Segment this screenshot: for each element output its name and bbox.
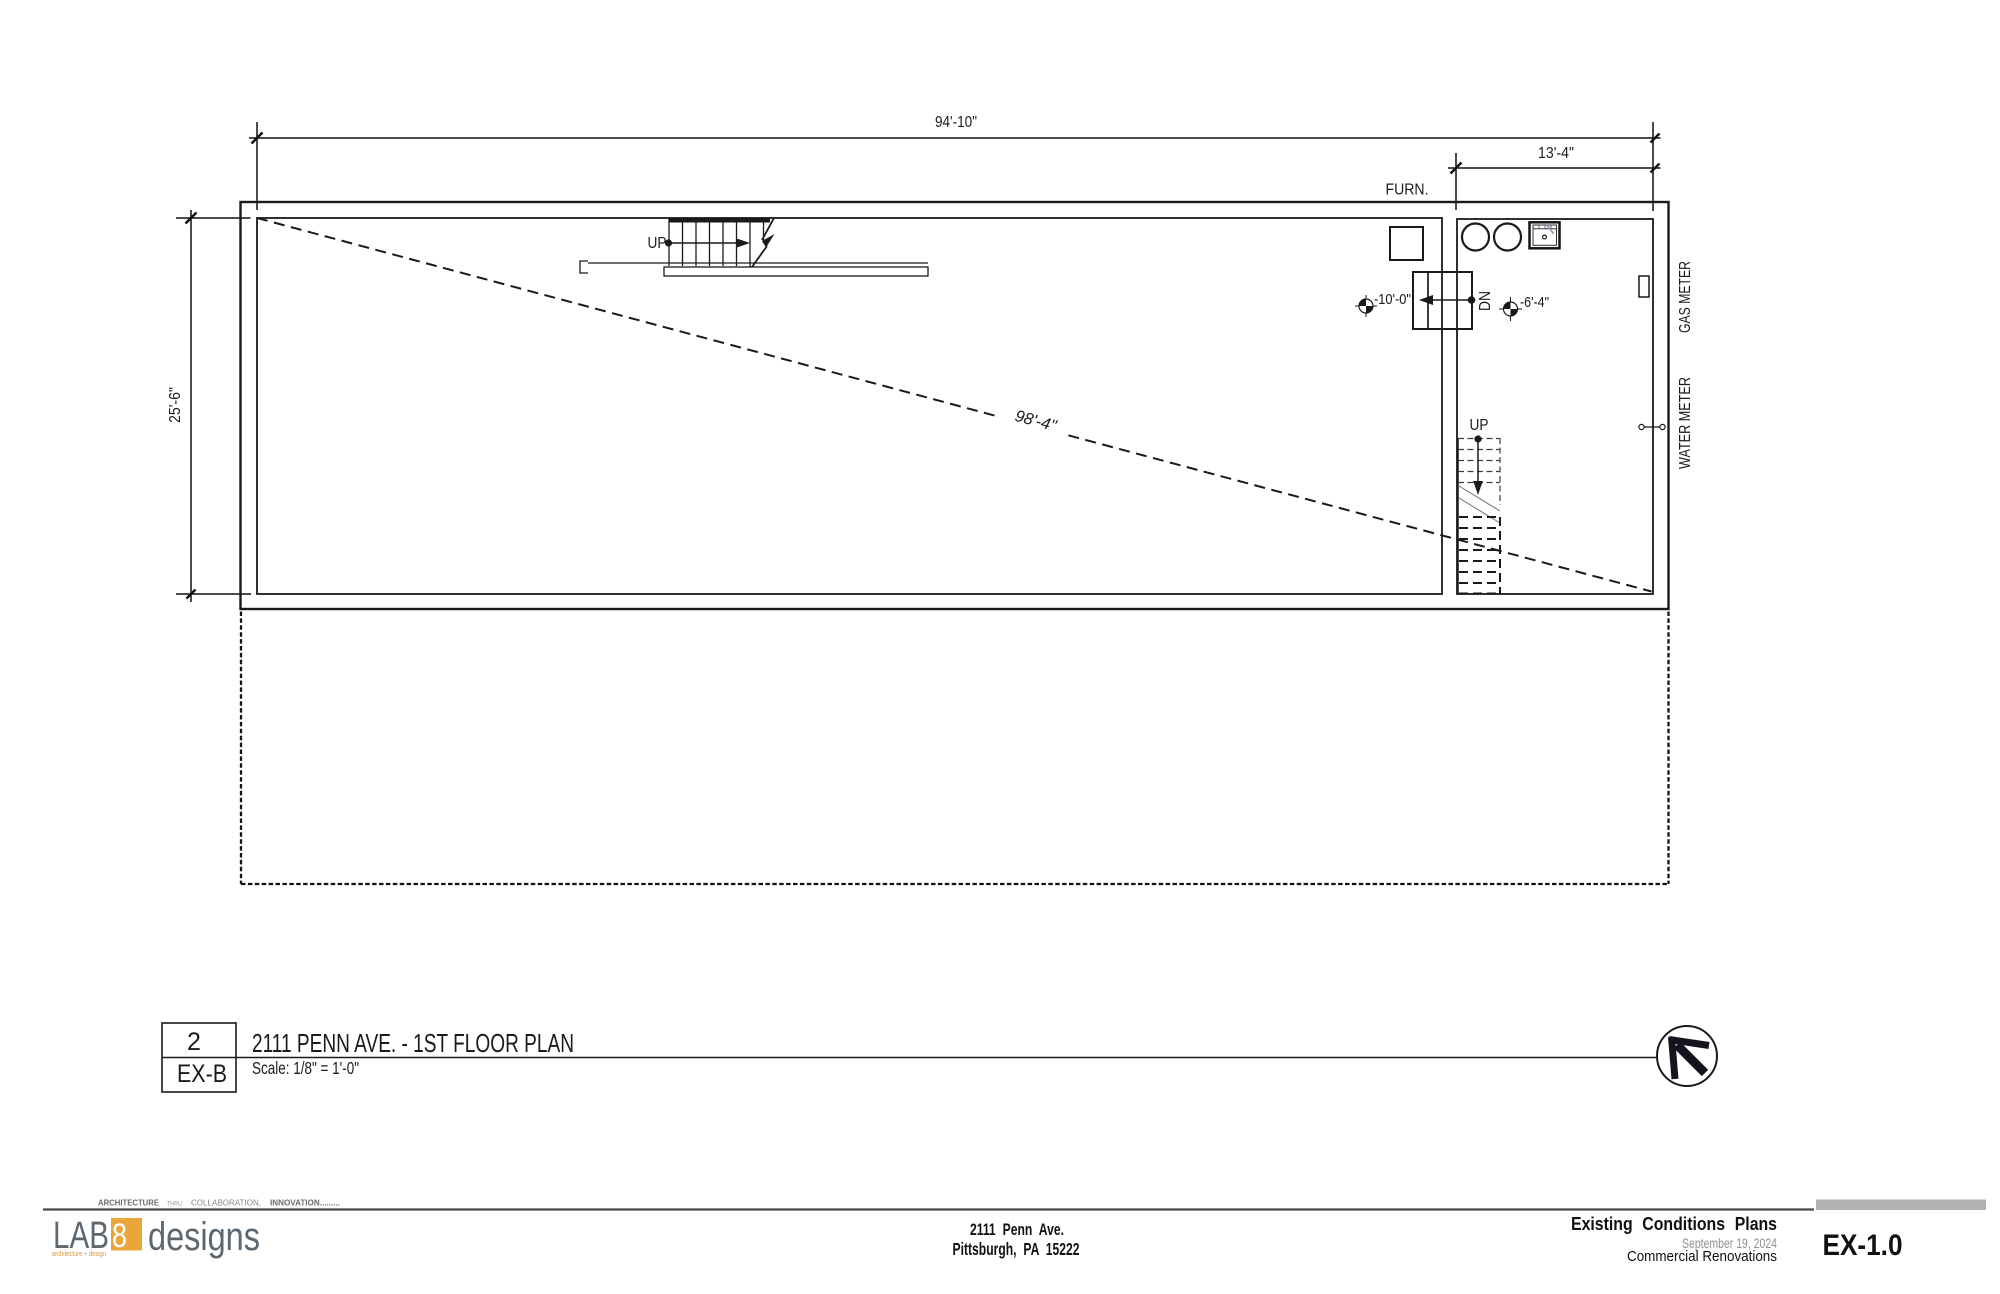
svg-text:GAS METER: GAS METER <box>1677 261 1694 333</box>
svg-text:2111 Penn Ave.: 2111 Penn Ave. <box>970 1220 1064 1239</box>
svg-text:2111 PENN AVE. - 1ST FLOOR PLA: 2111 PENN AVE. - 1ST FLOOR PLAN <box>252 1028 574 1058</box>
svg-text:25'-6": 25'-6" <box>167 387 184 423</box>
svg-text:COLLABORATION,: COLLABORATION, <box>191 1198 261 1208</box>
svg-text:Pittsburgh, PA 15222: Pittsburgh, PA 15222 <box>953 1239 1080 1259</box>
svg-text:Existing Conditions Plans: Existing Conditions Plans <box>1571 1214 1777 1234</box>
svg-text:FURN.: FURN. <box>1386 182 1429 199</box>
svg-text:94'-10": 94'-10" <box>935 114 977 131</box>
svg-text:-6'-4": -6'-4" <box>1520 294 1549 311</box>
svg-text:UP: UP <box>1470 417 1489 434</box>
svg-text:13'-4": 13'-4" <box>1538 145 1574 162</box>
svg-text:designs: designs <box>148 1215 260 1259</box>
svg-text:architecture + design: architecture + design <box>52 1251 106 1258</box>
svg-text:Scale: 1/8" = 1'-0": Scale: 1/8" = 1'-0" <box>252 1058 359 1078</box>
svg-text:EX-B: EX-B <box>177 1060 227 1088</box>
svg-text:UP: UP <box>648 235 667 252</box>
svg-text:WATER METER: WATER METER <box>1677 377 1694 469</box>
svg-text:8: 8 <box>112 1217 127 1255</box>
svg-text:DN: DN <box>1477 291 1494 311</box>
svg-text:-10'-0": -10'-0" <box>1374 291 1411 308</box>
svg-text:EX-1.0: EX-1.0 <box>1823 1229 1903 1262</box>
svg-text:ARCHITECTURE: ARCHITECTURE <box>98 1198 159 1208</box>
svg-text:98'-4": 98'-4" <box>1013 407 1059 436</box>
svg-text:Commercial Renovations: Commercial Renovations <box>1627 1248 1777 1265</box>
svg-text:2: 2 <box>187 1028 201 1056</box>
svg-text:THRU: THRU <box>167 1201 182 1208</box>
svg-text:INNOVATION.........: INNOVATION......... <box>270 1198 340 1208</box>
